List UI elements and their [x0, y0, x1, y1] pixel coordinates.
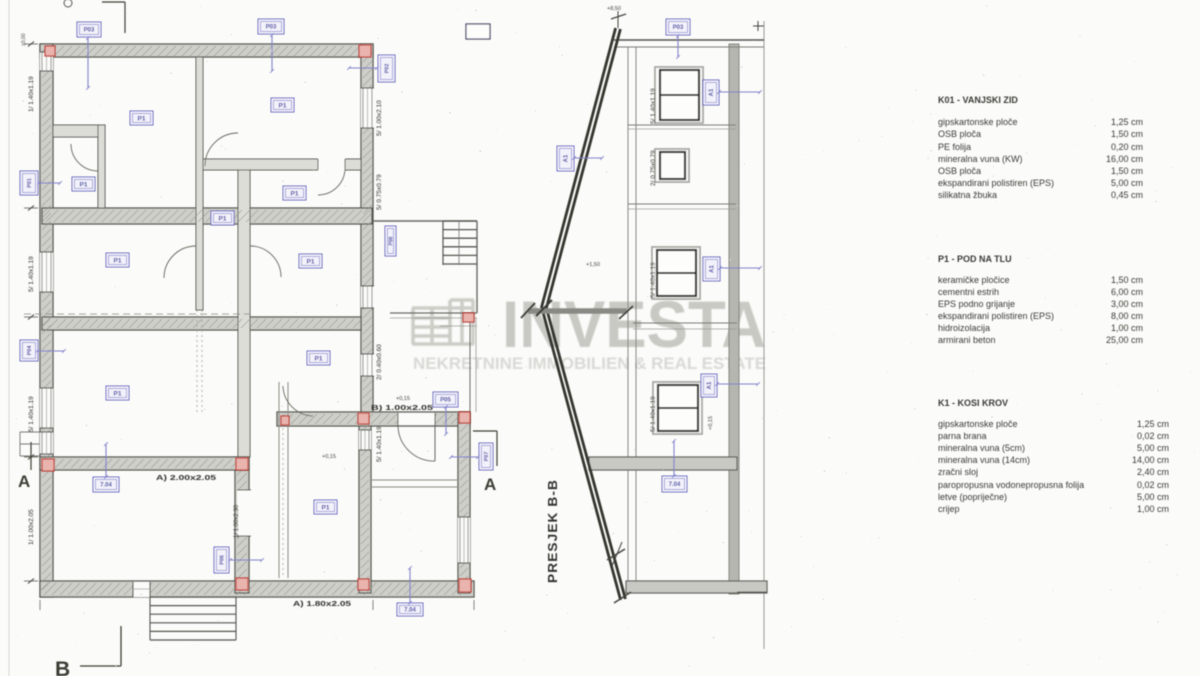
- svg-text:P1: P1: [307, 258, 315, 265]
- svg-text:P01: P01: [27, 178, 33, 188]
- svg-text:5/ 1.40x1.19: 5/ 1.40x1.19: [376, 426, 383, 462]
- svg-text:B) 1.00x2.05: B) 1.00x2.05: [371, 405, 433, 412]
- svg-text:P05: P05: [440, 398, 451, 404]
- svg-text:A) 1.80x2.05: A) 1.80x2.05: [293, 601, 351, 608]
- svg-text:ekspandirani polistiren (EPS): ekspandirani polistiren (EPS): [938, 178, 1054, 188]
- svg-text:P1: P1: [80, 181, 88, 188]
- svg-text:1/ 1.40x1.19: 1/ 1.40x1.19: [28, 76, 35, 112]
- svg-text:B: B: [55, 658, 70, 676]
- svg-text:2/ 0.75x0.79: 2/ 0.75x0.79: [650, 150, 657, 186]
- svg-text:zračni sloj: zračni sloj: [938, 467, 978, 477]
- svg-text:P08: P08: [388, 236, 394, 245]
- svg-text:16,00 cm: 16,00 cm: [1106, 154, 1143, 164]
- svg-text:5/ 1.40x1.19: 5/ 1.40x1.19: [28, 256, 35, 292]
- svg-text:K01 - VANJSKI ZID: K01 - VANJSKI ZID: [938, 95, 1018, 105]
- svg-text:P1: P1: [114, 390, 122, 397]
- svg-text:gipskartonske ploče: gipskartonske ploče: [938, 117, 1018, 127]
- svg-text:3,00 cm: 3,00 cm: [1111, 299, 1143, 309]
- svg-text:OSB ploča: OSB ploča: [938, 129, 981, 139]
- svg-text:NEKRETNINE IMMOBILIEN & REAL E: NEKRETNINE IMMOBILIEN & REAL ESTATE: [413, 354, 766, 373]
- svg-text:mineralna vuna (14cm): mineralna vuna (14cm): [938, 455, 1030, 465]
- svg-text:A: A: [484, 475, 496, 494]
- svg-text:1,00 cm: 1,00 cm: [1111, 323, 1143, 333]
- svg-text:+8,50: +8,50: [607, 6, 621, 12]
- svg-text:P07: P07: [484, 452, 490, 462]
- svg-text:1/ 1.00x2.05: 1/ 1.00x2.05: [28, 509, 35, 545]
- svg-text:5/ 0.75x0.79: 5/ 0.75x0.79: [376, 174, 383, 210]
- svg-text:mineralna vuna (KW): mineralna vuna (KW): [938, 154, 1023, 164]
- svg-text:silikatna žbuka: silikatna žbuka: [938, 190, 997, 200]
- svg-text:2,40 cm: 2,40 cm: [1137, 467, 1169, 477]
- svg-text:P1: P1: [138, 115, 146, 122]
- svg-text:P1 - POD NA TLU: P1 - POD NA TLU: [938, 254, 1012, 264]
- svg-text:7.04: 7.04: [669, 482, 681, 488]
- svg-text:INVESTA: INVESTA: [502, 287, 766, 361]
- svg-text:P1: P1: [291, 190, 299, 197]
- svg-text:P1: P1: [219, 215, 227, 222]
- svg-text:A1: A1: [709, 88, 715, 96]
- svg-text:0,20 cm: 0,20 cm: [1111, 142, 1143, 152]
- svg-text:5/ 1.40x1.19: 5/ 1.40x1.19: [650, 88, 657, 124]
- svg-text:A1: A1: [710, 265, 716, 273]
- svg-text:P1: P1: [315, 355, 323, 362]
- svg-text:0,02 cm: 0,02 cm: [1137, 480, 1169, 490]
- svg-text:parna brana: parna brana: [938, 431, 987, 441]
- svg-text:P03: P03: [673, 25, 684, 31]
- svg-text:6,00 cm: 6,00 cm: [1111, 287, 1143, 297]
- svg-text:5,00 cm: 5,00 cm: [1137, 492, 1169, 502]
- svg-text:cementni estrih: cementni estrih: [938, 287, 999, 297]
- svg-text:+0,15: +0,15: [708, 416, 714, 430]
- svg-text:±0,00: ±0,00: [21, 33, 27, 46]
- svg-text:P1: P1: [279, 102, 287, 109]
- svg-text:1,25 cm: 1,25 cm: [1111, 117, 1143, 127]
- svg-text:gipskartonske ploče: gipskartonske ploče: [938, 419, 1018, 429]
- svg-text:A) 2.00x2.05: A) 2.00x2.05: [156, 475, 216, 482]
- svg-text:0,02 cm: 0,02 cm: [1137, 431, 1169, 441]
- svg-text:25,00 cm: 25,00 cm: [1106, 335, 1143, 345]
- svg-text:A1: A1: [564, 154, 570, 162]
- svg-text:7.04: 7.04: [100, 483, 112, 489]
- svg-text:A1: A1: [707, 381, 713, 389]
- svg-text:5/ 1.40x1.19: 5/ 1.40x1.19: [28, 396, 35, 432]
- svg-text:8,00 cm: 8,00 cm: [1111, 311, 1143, 321]
- svg-text:+0,15: +0,15: [322, 454, 336, 460]
- svg-text:P06: P06: [219, 555, 225, 565]
- svg-text:crijep: crijep: [938, 504, 960, 514]
- svg-text:P1: P1: [322, 504, 330, 511]
- svg-text:7.04: 7.04: [404, 608, 416, 614]
- svg-text:14,00 cm: 14,00 cm: [1132, 455, 1169, 465]
- svg-text:1,50 cm: 1,50 cm: [1111, 129, 1143, 139]
- svg-text:EPS podno grijanje: EPS podno grijanje: [938, 299, 1015, 309]
- svg-text:1/ 1.00x2.30: 1/ 1.00x2.30: [234, 504, 240, 538]
- svg-text:PRESJEK B-B: PRESJEK B-B: [546, 479, 560, 583]
- svg-text:2/ 0.40x0.60: 2/ 0.40x0.60: [376, 344, 383, 380]
- svg-text:K1 - KOSI KROV: K1 - KOSI KROV: [938, 398, 1008, 408]
- svg-text:0,45 cm: 0,45 cm: [1111, 190, 1143, 200]
- svg-text:5/ 1.40x1.19: 5/ 1.40x1.19: [650, 262, 657, 298]
- svg-text:P03: P03: [266, 25, 277, 31]
- svg-text:5,00 cm: 5,00 cm: [1137, 443, 1169, 453]
- svg-text:keramičke pločice: keramičke pločice: [938, 275, 1010, 285]
- svg-text:hidroizolacija: hidroizolacija: [938, 323, 990, 333]
- svg-text:1,00 cm: 1,00 cm: [1137, 504, 1169, 514]
- svg-text:armirani beton: armirani beton: [938, 335, 996, 345]
- svg-text:5/ 1.40x1.19: 5/ 1.40x1.19: [650, 396, 657, 432]
- svg-text:ekspandirani polistiren (EPS): ekspandirani polistiren (EPS): [938, 311, 1054, 321]
- svg-text:P04: P04: [27, 345, 33, 356]
- svg-text:paropropusna vodonepropusna fo: paropropusna vodonepropusna folija: [938, 480, 1084, 490]
- svg-text:P02: P02: [384, 64, 390, 74]
- svg-text:A: A: [18, 472, 30, 491]
- svg-text:1,50 cm: 1,50 cm: [1111, 275, 1143, 285]
- svg-text:1,25 cm: 1,25 cm: [1137, 419, 1169, 429]
- svg-text:P03: P03: [84, 28, 95, 34]
- svg-text:P1: P1: [114, 257, 122, 264]
- svg-text:letve (popriječne): letve (popriječne): [938, 492, 1007, 502]
- svg-text:PE folija: PE folija: [938, 142, 971, 152]
- svg-text:+1,50: +1,50: [586, 262, 600, 268]
- svg-text:1,50 cm: 1,50 cm: [1111, 166, 1143, 176]
- svg-text:mineralna vuna (5cm): mineralna vuna (5cm): [938, 443, 1025, 453]
- svg-text:5/ 1.00x2.10: 5/ 1.00x2.10: [376, 100, 383, 136]
- svg-text:5,00 cm: 5,00 cm: [1111, 178, 1143, 188]
- svg-text:OSB ploča: OSB ploča: [938, 166, 981, 176]
